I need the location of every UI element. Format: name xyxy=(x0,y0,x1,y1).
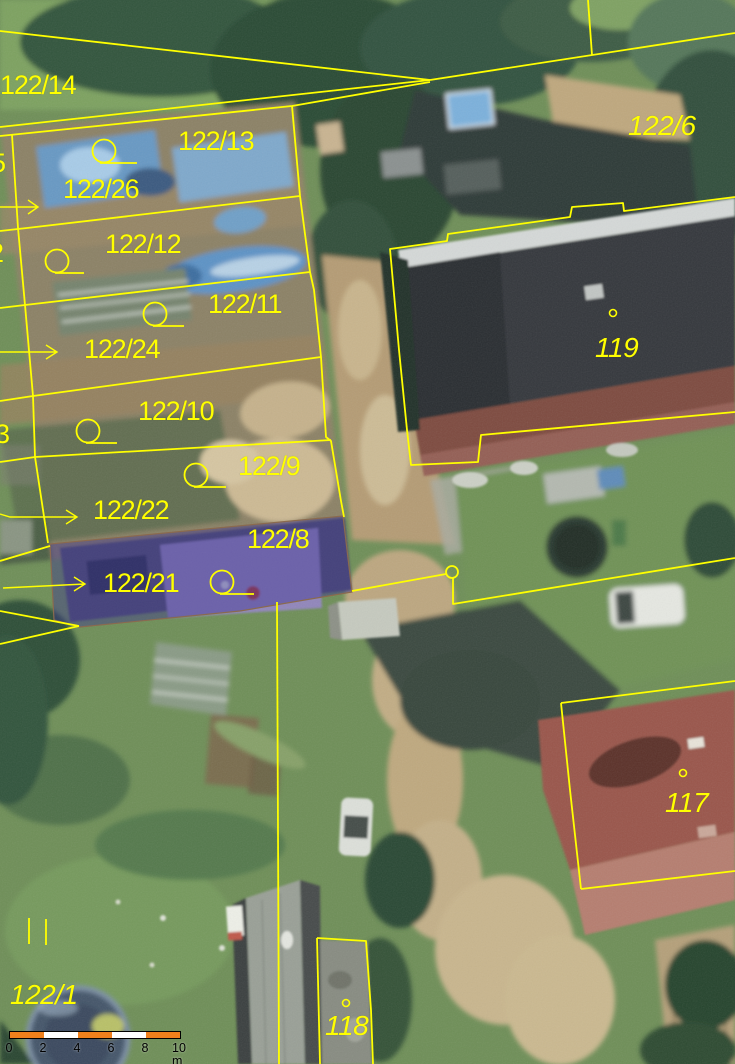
survey-point-symbol xyxy=(77,420,100,443)
building-point-symbol xyxy=(680,770,687,777)
survey-point-symbol xyxy=(93,140,116,163)
scale-bar-tick: 4 xyxy=(74,1042,81,1055)
boundary-line xyxy=(453,558,735,604)
parcel-118-outline xyxy=(317,938,320,1064)
scale-bar-tick: 0 xyxy=(6,1042,13,1055)
boundary-line xyxy=(352,574,446,591)
boundary-line xyxy=(0,80,430,127)
boundary-line xyxy=(0,546,50,561)
parcel-118-outline xyxy=(317,938,373,1064)
boundary-line xyxy=(0,626,79,644)
boundary-line xyxy=(430,33,735,80)
survey-point-symbol xyxy=(144,303,167,326)
boundary-line xyxy=(0,82,430,136)
cadastral-map-viewport[interactable]: 122/14122/13122/26122/12122/11122/24122/… xyxy=(0,0,735,1064)
boundary-point-symbol xyxy=(446,566,458,578)
scale-bar: 0246810 m xyxy=(9,1031,199,1061)
boundary-line xyxy=(0,440,331,462)
parcel-117-outline xyxy=(581,871,735,889)
parcel-119-outline xyxy=(390,197,735,465)
scale-bar-tick: 8 xyxy=(142,1042,149,1055)
scale-bar-segment xyxy=(112,1032,146,1038)
building-point-symbol xyxy=(610,310,617,317)
boundary-line xyxy=(0,196,300,231)
scale-bar-segment xyxy=(44,1032,78,1038)
scale-bar-tick: 6 xyxy=(108,1042,115,1055)
parcel-117-outline xyxy=(561,681,735,703)
direction-arrow xyxy=(0,200,38,214)
building-point-symbol xyxy=(343,1000,350,1007)
scale-bar-segment xyxy=(10,1032,44,1038)
scale-bar-segments xyxy=(9,1031,181,1039)
boundary-line xyxy=(292,106,344,517)
direction-arrow xyxy=(0,510,77,524)
boundary-line xyxy=(0,357,321,401)
highlighted-parcel-122-8[interactable] xyxy=(50,516,352,627)
survey-point-symbol xyxy=(185,464,208,487)
boundary-line xyxy=(277,602,279,1064)
scale-bar-unit-label: 10 m xyxy=(172,1042,190,1064)
cadastral-overlay xyxy=(0,0,735,1064)
scale-bar-tick: 2 xyxy=(40,1042,47,1055)
scale-bar-segment xyxy=(146,1032,180,1038)
boundary-line xyxy=(12,135,48,543)
scale-bar-segment xyxy=(78,1032,112,1038)
parcel-117-outline xyxy=(561,703,581,889)
boundary-line xyxy=(588,0,592,55)
boundary-line xyxy=(0,31,430,80)
survey-point-symbol xyxy=(46,250,69,273)
